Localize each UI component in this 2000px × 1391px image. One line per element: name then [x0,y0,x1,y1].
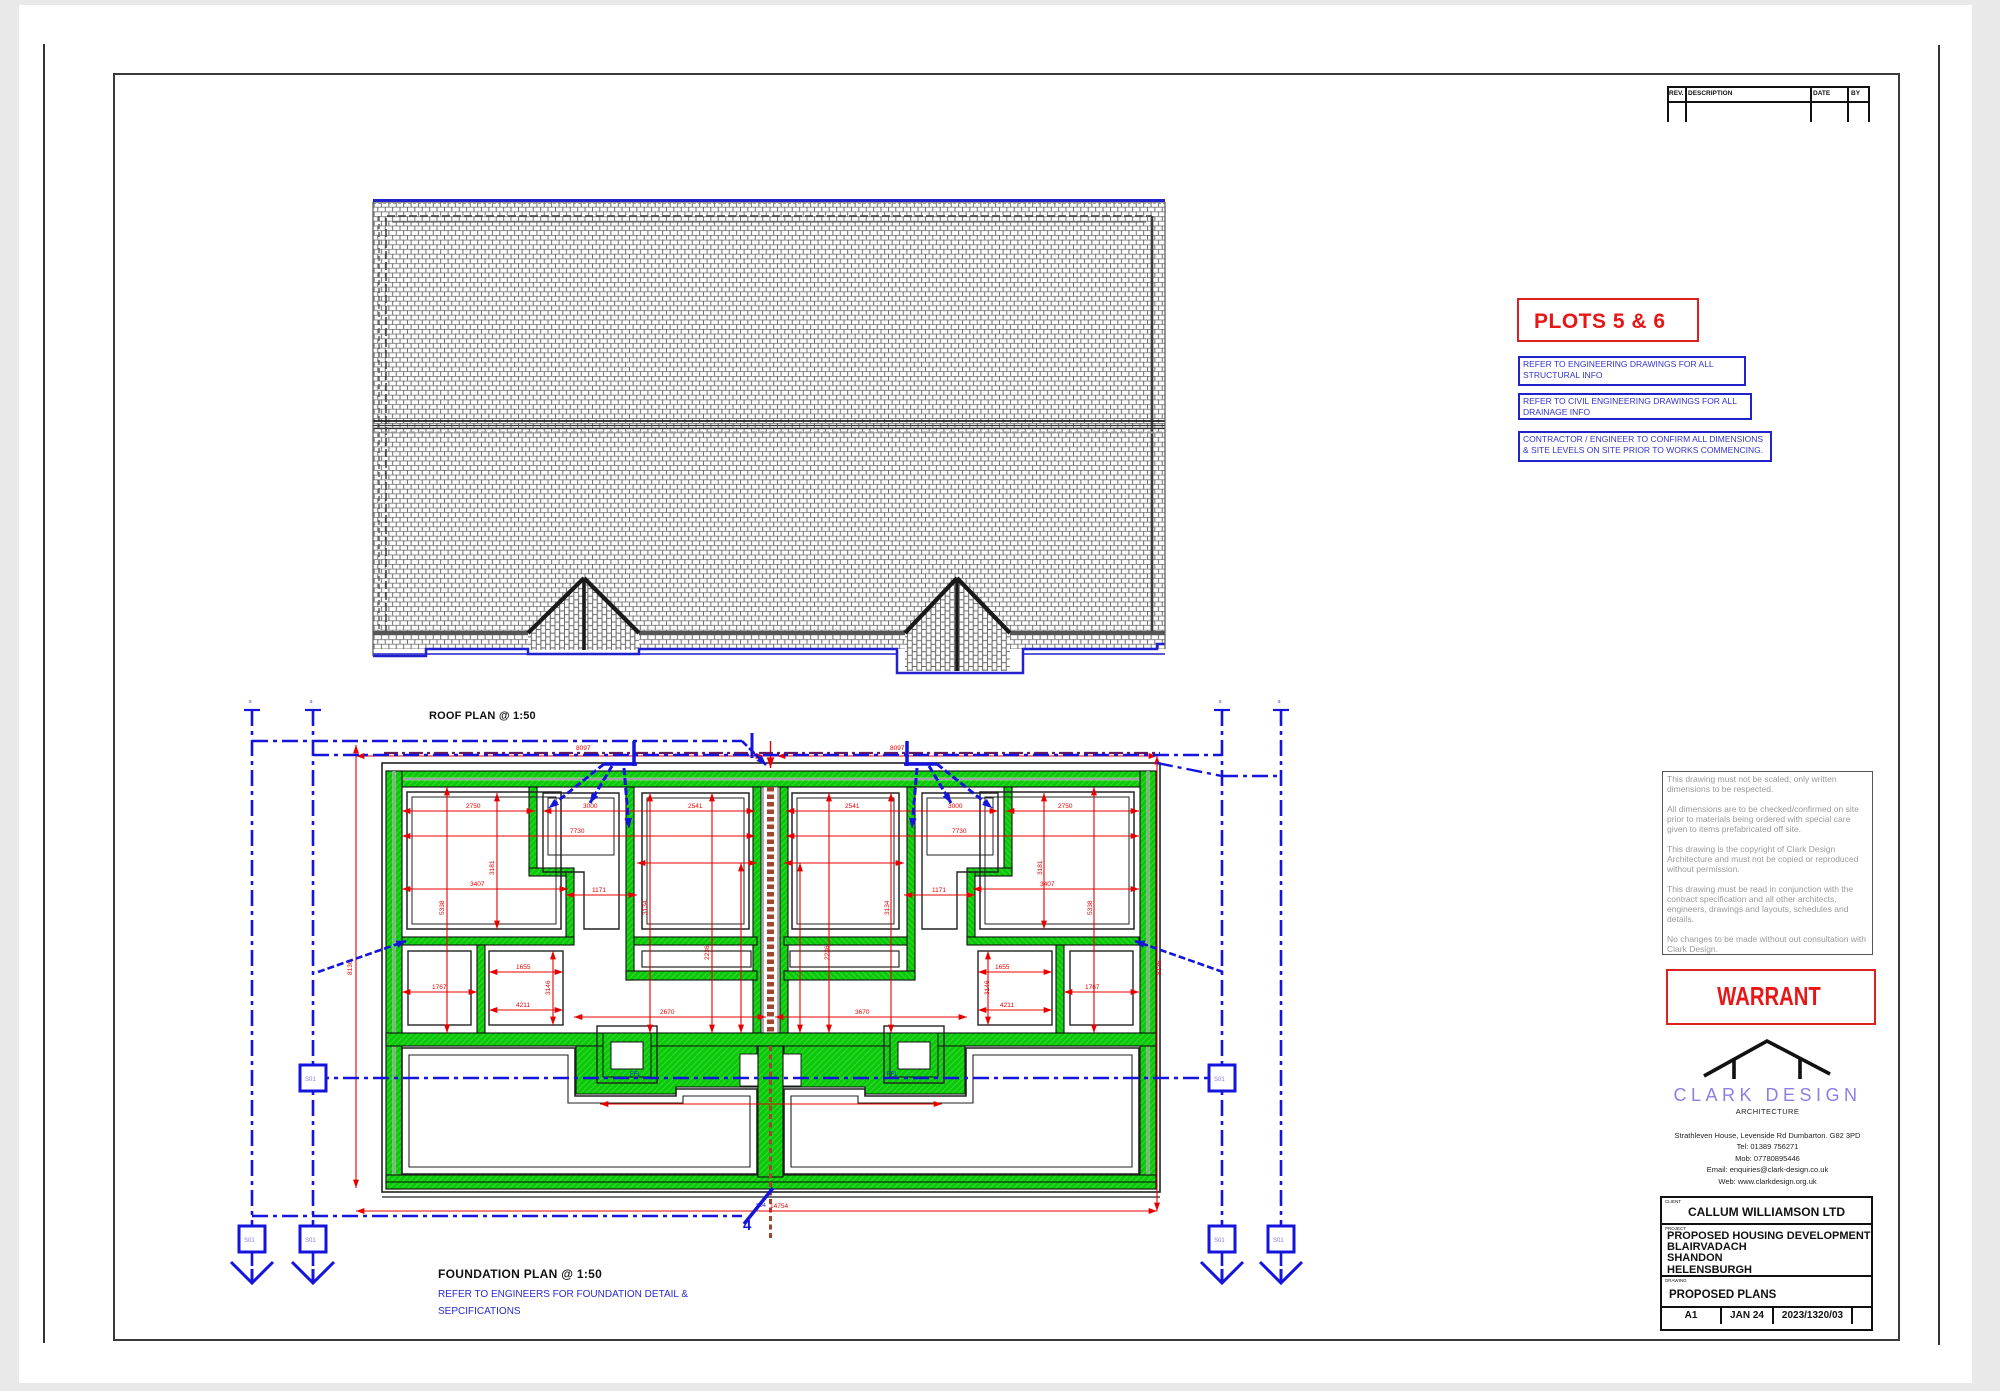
svg-text:S01: S01 [305,1077,316,1083]
svg-text:s: s [1278,699,1281,705]
svg-text:2750: 2750 [466,803,481,810]
svg-text:2670: 2670 [660,1009,675,1016]
svg-text:S04: S04 [756,1203,766,1209]
svg-text:FOUNDATION PLAN @ 1:50: FOUNDATION PLAN @ 1:50 [438,1267,602,1281]
svg-text:4: 4 [743,1217,752,1234]
svg-text:3670: 3670 [855,1009,870,1016]
svg-text:3407: 3407 [470,881,485,888]
svg-text:7730: 7730 [952,828,967,835]
svg-text:s: s [249,699,252,705]
svg-text:4211: 4211 [516,1002,530,1009]
svg-text:2236: 2236 [704,945,711,960]
svg-text:14754: 14754 [770,1203,788,1210]
svg-text:2541: 2541 [688,803,703,810]
svg-text:1655: 1655 [995,964,1010,971]
svg-text:REFER TO ENGINEERS FOR FOUNDAT: REFER TO ENGINEERS FOR FOUNDATION DETAIL… [438,1289,688,1300]
svg-text:s: s [310,699,313,705]
svg-text:8097: 8097 [890,745,905,752]
svg-text:8097: 8097 [576,745,591,752]
svg-text:3146: 3146 [984,980,991,995]
svg-text:5338: 5338 [1087,900,1094,915]
svg-text:3181: 3181 [1037,860,1044,875]
svg-text:S01: S01 [1273,1238,1284,1244]
svg-text:1171: 1171 [932,887,946,894]
svg-text:S01: S01 [1214,1077,1225,1083]
svg-text:8136: 8136 [1156,960,1163,975]
svg-text:3134: 3134 [884,900,891,915]
svg-text:FFL: FFL [630,1072,641,1078]
svg-text:3000: 3000 [948,803,963,810]
svg-text:7730: 7730 [570,828,585,835]
svg-text:2750: 2750 [1058,803,1073,810]
svg-text:1655: 1655 [516,964,531,971]
svg-text:2236: 2236 [824,945,831,960]
svg-text:S01: S01 [1214,1238,1225,1244]
svg-text:3407: 3407 [1040,881,1055,888]
svg-text:s: s [1219,699,1222,705]
svg-text:2541: 2541 [845,803,860,810]
svg-text:ROOF PLAN @ 1:50: ROOF PLAN @ 1:50 [429,710,536,722]
svg-text:3146: 3146 [545,980,552,995]
svg-text:FFL: FFL [887,1072,898,1078]
svg-text:3134: 3134 [642,900,649,915]
svg-text:3000: 3000 [583,803,598,810]
svg-text:5338: 5338 [439,900,446,915]
svg-text:S01: S01 [305,1238,316,1244]
svg-text:1767: 1767 [1085,984,1100,991]
svg-text:1767: 1767 [432,984,447,991]
svg-text:3181: 3181 [489,860,496,875]
svg-text:S01: S01 [244,1238,255,1244]
svg-text:4211: 4211 [1000,1002,1014,1009]
svg-text:1171: 1171 [592,887,606,894]
svg-text:SEPCIFICATIONS: SEPCIFICATIONS [438,1306,521,1317]
